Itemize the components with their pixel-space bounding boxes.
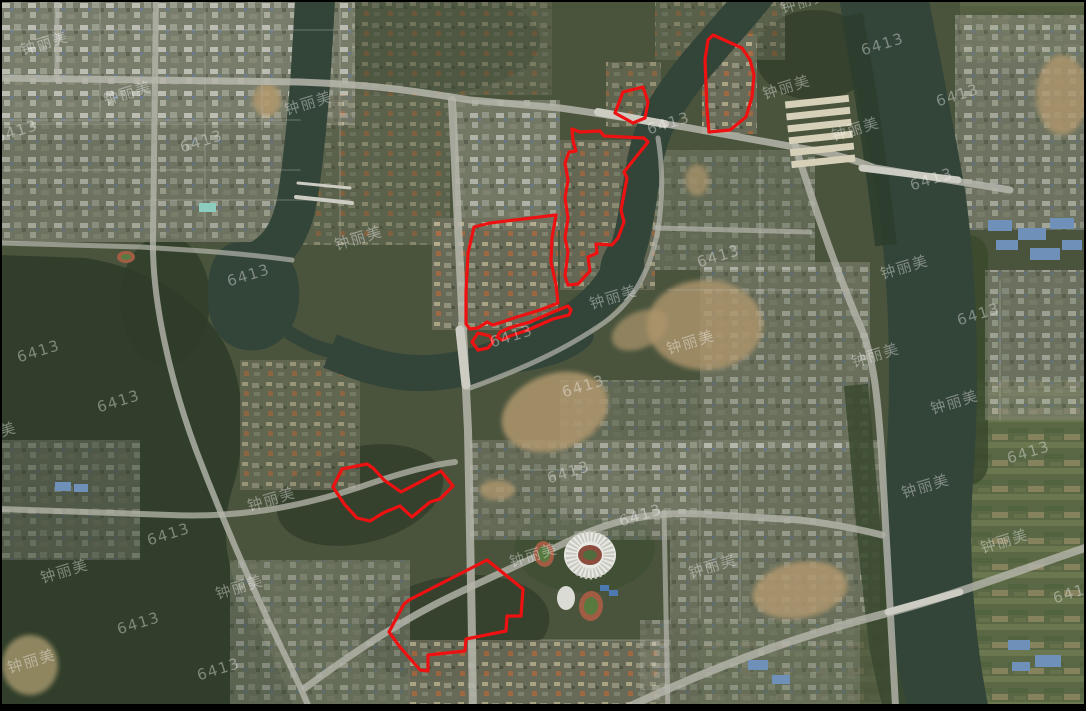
map-viewport: 钟丽美钟丽美钟丽美钟丽美钟丽美钟丽美钟丽美钟丽美钟丽美钟丽美钟丽美钟丽美钟丽美钟… <box>0 0 1086 711</box>
satellite-map[interactable]: 钟丽美钟丽美钟丽美钟丽美钟丽美钟丽美钟丽美钟丽美钟丽美钟丽美钟丽美钟丽美钟丽美钟… <box>0 0 1086 711</box>
screenshot-frame: 钟丽美钟丽美钟丽美钟丽美钟丽美钟丽美钟丽美钟丽美钟丽美钟丽美钟丽美钟丽美钟丽美钟… <box>0 0 1086 711</box>
atmosphere-haze <box>0 0 1086 711</box>
terrain-layer <box>0 0 1086 711</box>
